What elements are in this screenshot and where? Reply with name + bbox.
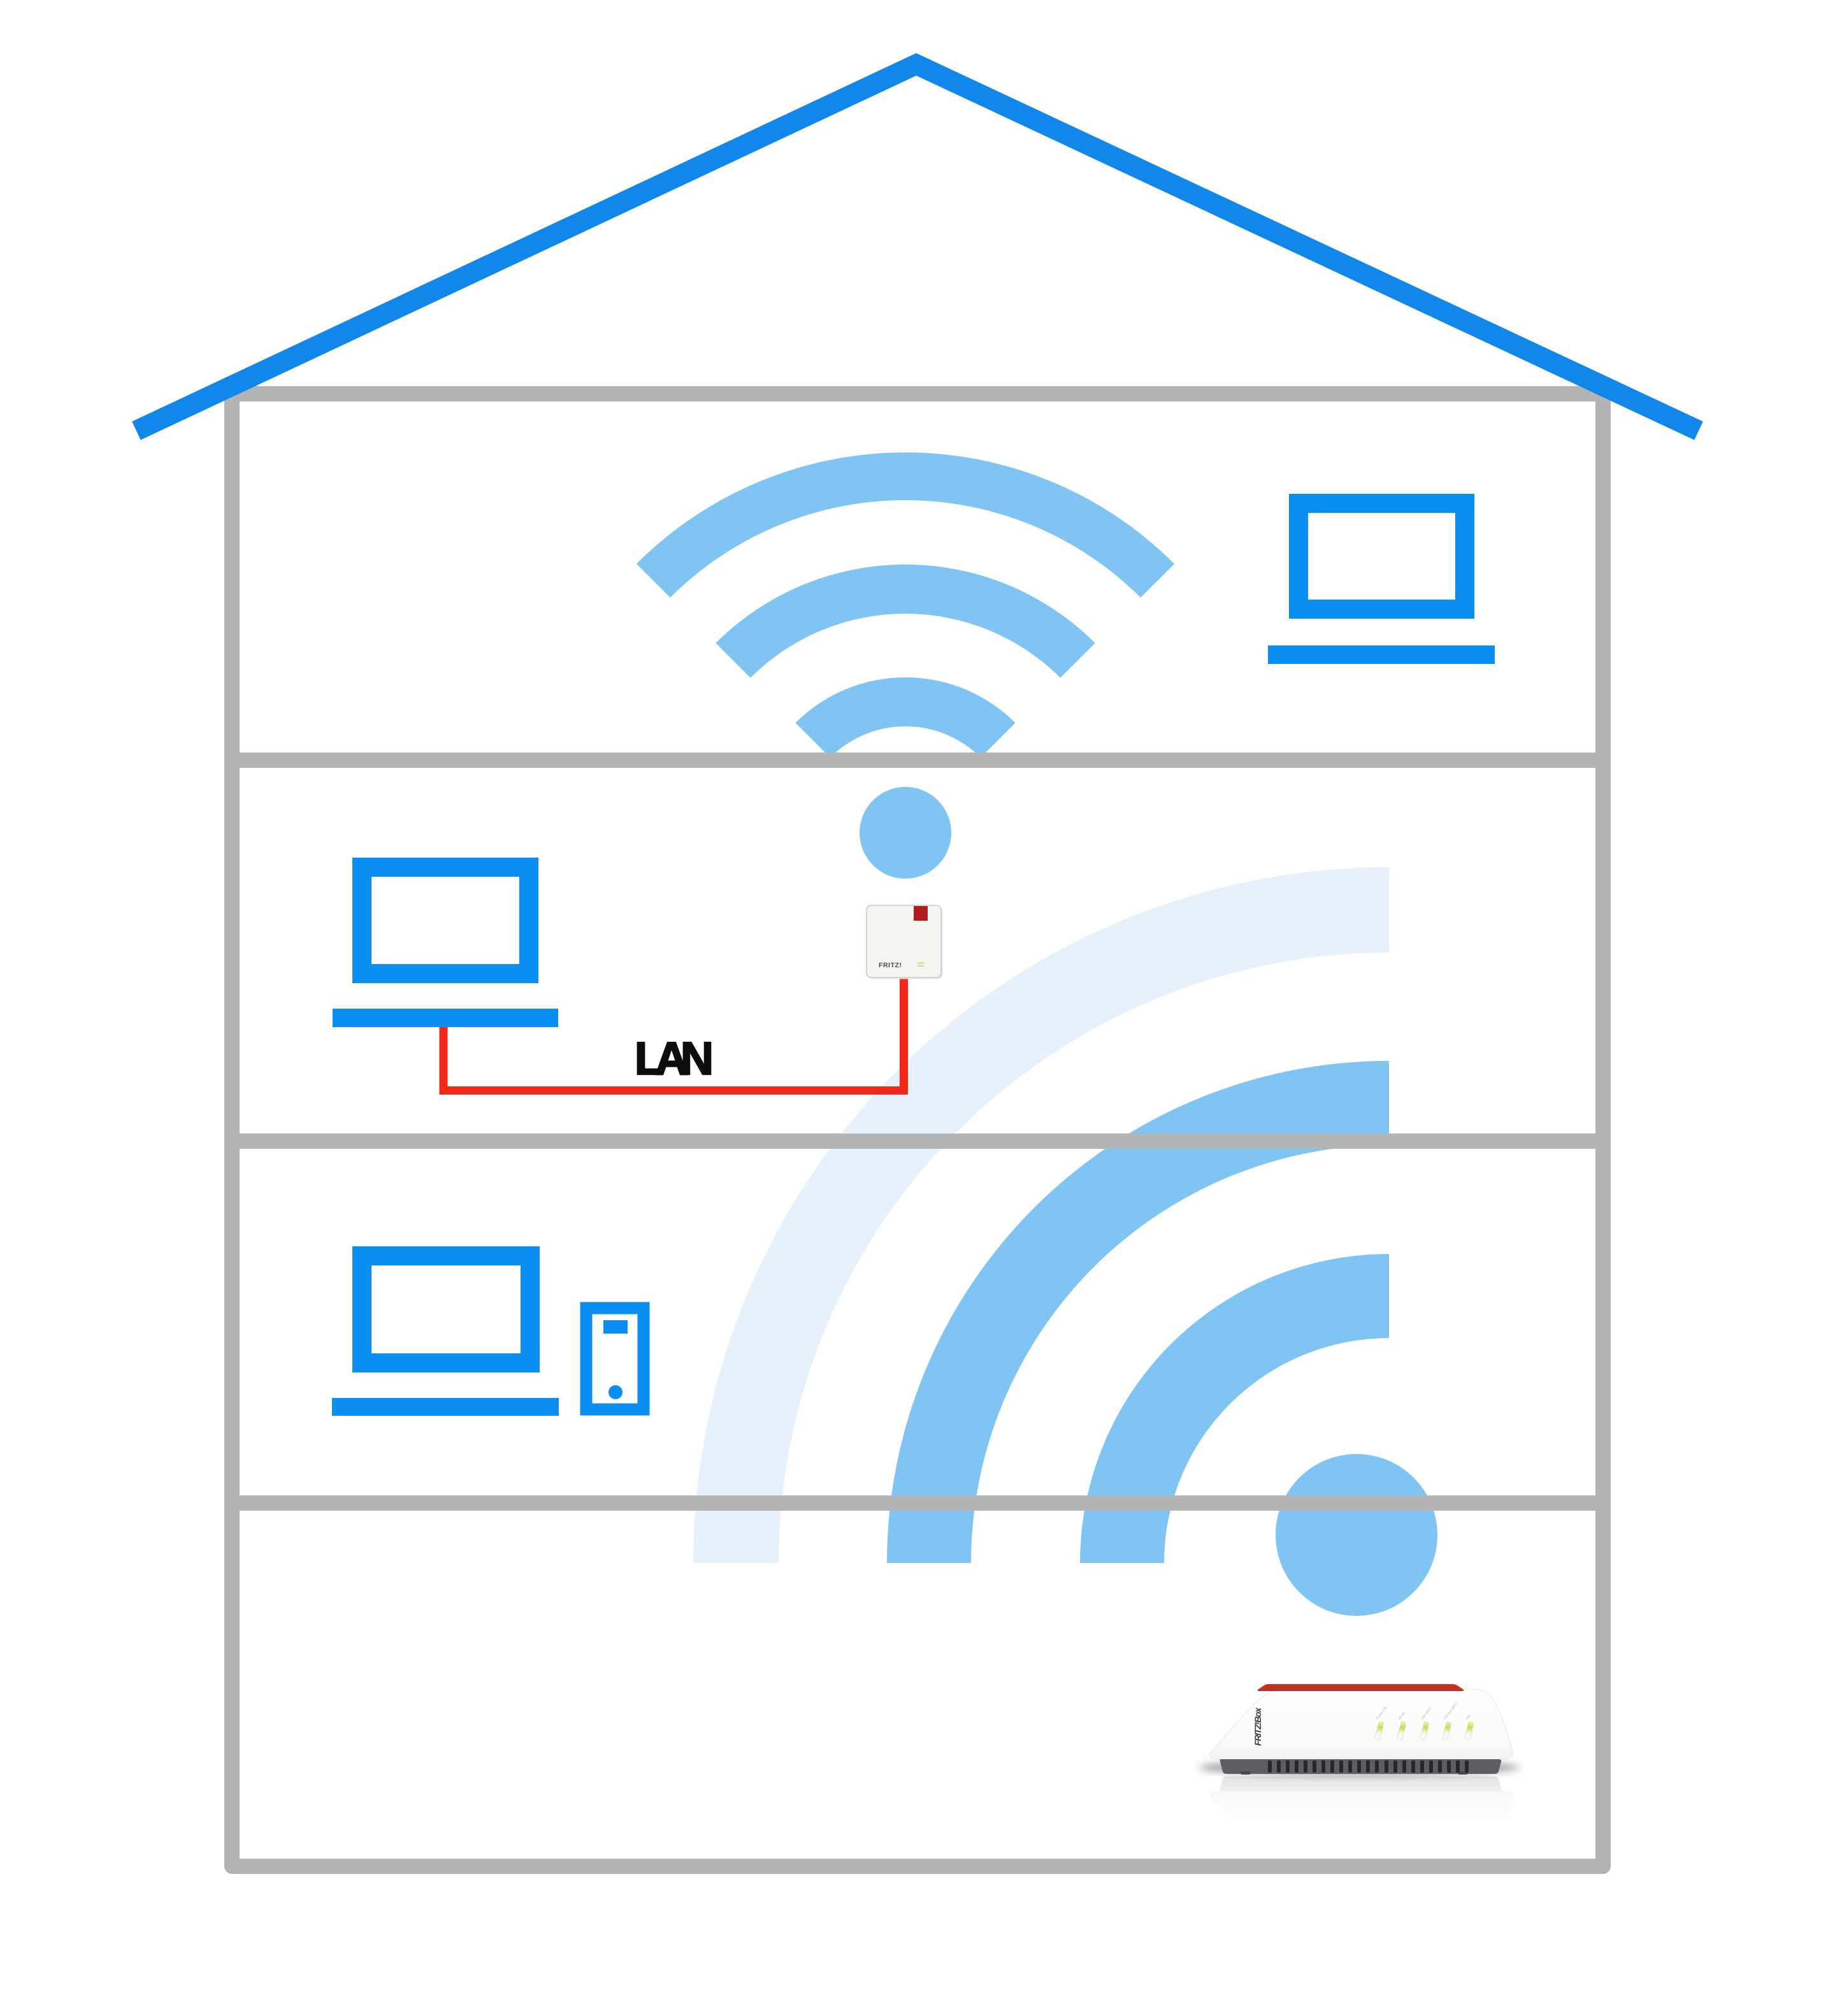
svg-text:FRITZ!Box: FRITZ!Box [1253,1707,1263,1746]
svg-text:LAN: LAN [635,1033,714,1084]
svg-text:FRITZ!: FRITZ! [879,961,902,969]
